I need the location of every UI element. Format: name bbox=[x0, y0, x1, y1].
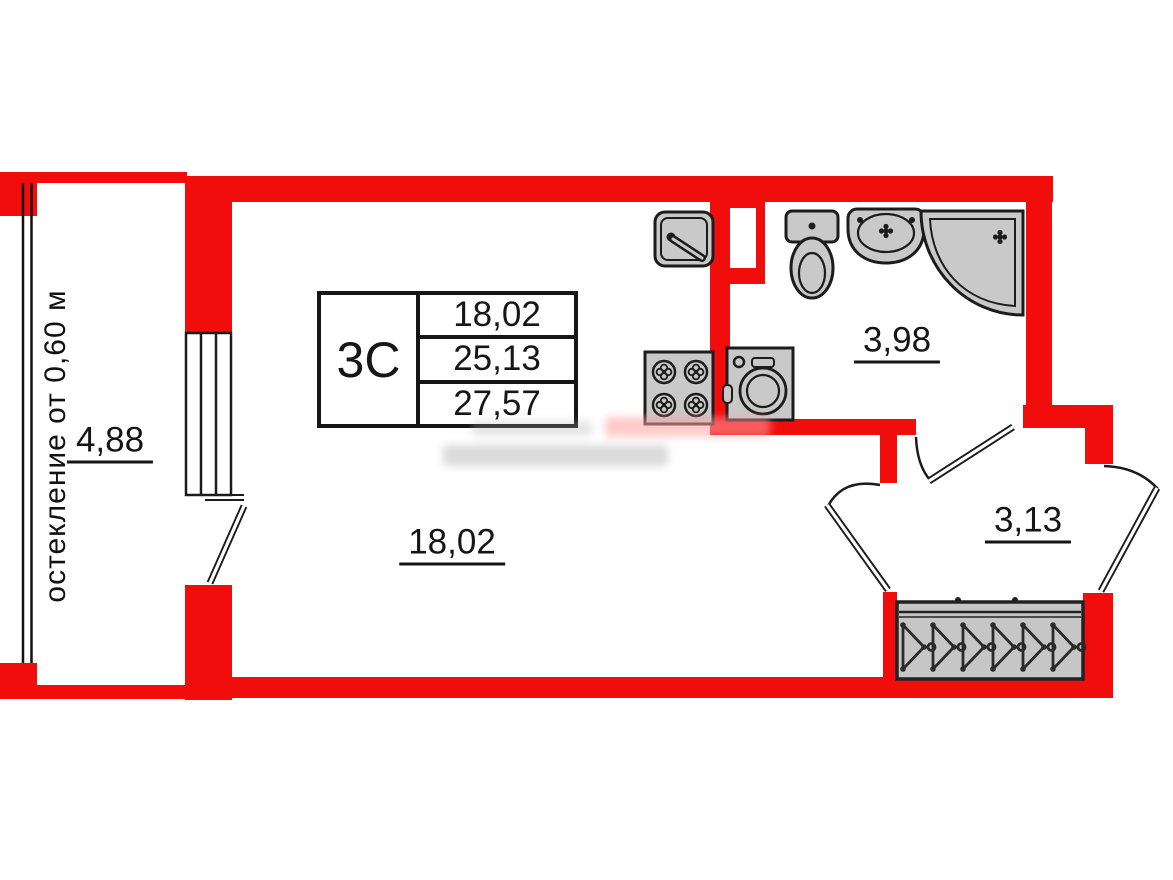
balcony-glazing-note: остекление от 0,60 м bbox=[39, 289, 73, 602]
watermark bbox=[443, 445, 668, 466]
kitchen-sink-icon bbox=[655, 212, 713, 266]
apartment-areas-column: 18,02 25,13 27,57 bbox=[420, 295, 574, 424]
watermark bbox=[605, 417, 770, 437]
balcony-door bbox=[205, 495, 244, 583]
floor-plan: 3С 18,02 25,13 27,57 18,02 3,98 3,13 4,8… bbox=[0, 0, 1173, 880]
floor-plan-drawing bbox=[0, 0, 1173, 880]
balcony-glazing bbox=[23, 183, 32, 663]
watermark bbox=[472, 421, 592, 436]
room-door bbox=[827, 484, 888, 590]
shower-icon bbox=[921, 211, 1023, 315]
washbasin-icon bbox=[848, 209, 924, 263]
toilet-icon bbox=[786, 211, 838, 298]
stove-icon bbox=[645, 352, 713, 424]
main-room-area-label: 18,02 bbox=[399, 525, 505, 566]
washing-machine-icon bbox=[723, 348, 793, 420]
bathroom-area-label: 3,98 bbox=[854, 323, 940, 364]
vent-duct bbox=[730, 208, 756, 268]
balcony-area-label: 4,88 bbox=[67, 423, 153, 464]
hallway-area-label: 3,13 bbox=[985, 503, 1071, 544]
living-area-value: 18,02 bbox=[420, 295, 574, 335]
apartment-type-label: 3С bbox=[321, 295, 420, 424]
total-area-value: 25,13 bbox=[420, 335, 574, 379]
wardrobe-icon bbox=[897, 597, 1085, 679]
balcony-window bbox=[186, 333, 231, 495]
bathroom-door bbox=[916, 427, 1013, 481]
entrance-door bbox=[1101, 466, 1158, 591]
overall-area-value: 27,57 bbox=[420, 380, 574, 424]
apartment-info-table: 3С 18,02 25,13 27,57 bbox=[317, 291, 578, 428]
